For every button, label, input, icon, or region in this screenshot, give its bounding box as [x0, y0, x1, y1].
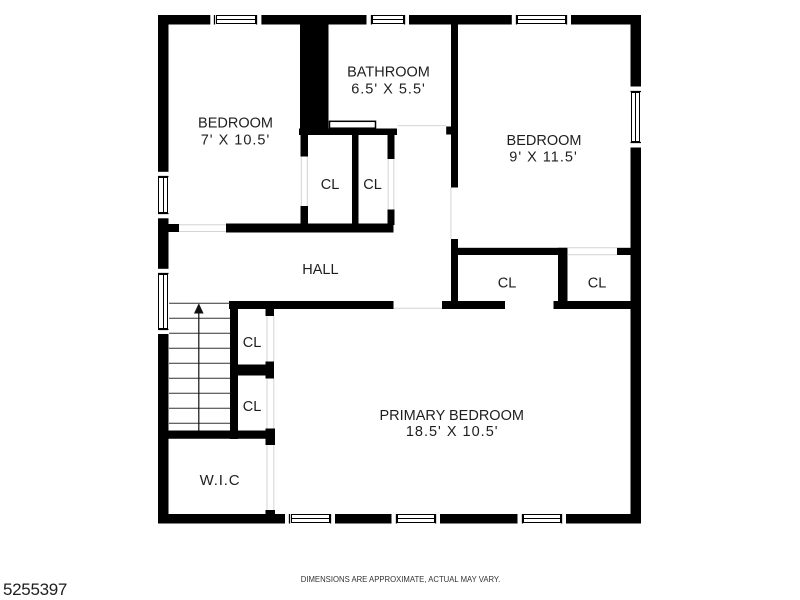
svg-text:5255397: 5255397 — [3, 580, 67, 599]
svg-text:CL: CL — [363, 177, 382, 193]
svg-text:9' X 11.5': 9' X 11.5' — [509, 150, 577, 166]
svg-text:18.5' X 10.5': 18.5' X 10.5' — [406, 424, 499, 440]
svg-text:DIMENSIONS ARE APPROXIMATE, AC: DIMENSIONS ARE APPROXIMATE, ACTUAL MAY V… — [301, 574, 501, 584]
svg-text:CL: CL — [321, 177, 340, 193]
svg-text:W.I.C: W.I.C — [200, 472, 241, 489]
svg-text:CL: CL — [243, 399, 262, 415]
svg-text:CL: CL — [243, 335, 262, 351]
svg-text:BATHROOM: BATHROOM — [347, 65, 430, 81]
svg-text:7' X 10.5': 7' X 10.5' — [201, 133, 271, 149]
svg-text:BEDROOM: BEDROOM — [198, 116, 273, 132]
svg-text:BEDROOM: BEDROOM — [507, 133, 582, 149]
svg-text:CL: CL — [588, 275, 607, 291]
svg-text:6.5' X 5.5': 6.5' X 5.5' — [351, 82, 426, 98]
svg-text:HALL: HALL — [302, 262, 338, 278]
svg-text:PRIMARY BEDROOM: PRIMARY BEDROOM — [379, 408, 524, 424]
svg-text:CL: CL — [498, 275, 517, 291]
